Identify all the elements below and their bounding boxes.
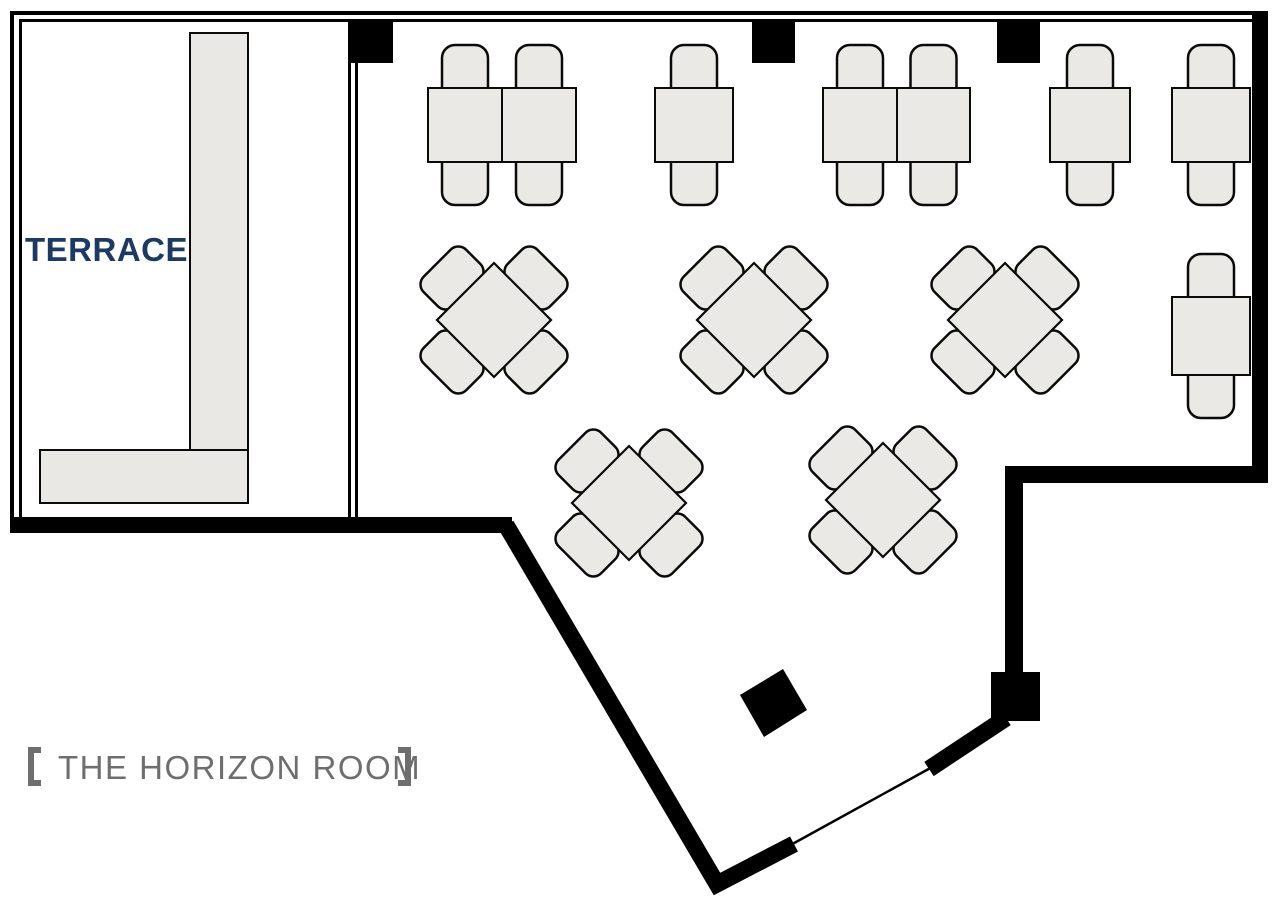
wall-top-inner: [19, 19, 1252, 22]
terrace-divider-a: [348, 22, 351, 517]
table: [823, 88, 897, 162]
terrace-divider-b: [355, 22, 358, 517]
wall-notch-vertical: [1005, 466, 1023, 673]
table: [1172, 88, 1250, 162]
pillar-diamond: [740, 669, 807, 737]
furniture-layer: [416, 45, 1250, 581]
terrace-counter-horizontal: [40, 450, 248, 503]
wall-terrace-bottom: [10, 517, 512, 533]
wall-door-jamb: [929, 718, 1006, 769]
floor-plan: TERRACE THE HORIZON ROOM: [0, 0, 1278, 902]
terrace-label: TERRACE: [25, 231, 188, 268]
table: [428, 88, 502, 162]
table: [655, 88, 733, 162]
wall-left-inner: [19, 19, 22, 517]
pillar-top-2: [752, 22, 795, 63]
wall-left-outer: [10, 11, 14, 533]
door-line: [787, 766, 934, 847]
wall-notch-horizontal: [1005, 466, 1268, 483]
terrace-counter-layer: [40, 33, 248, 503]
wall-top-outer: [10, 11, 1268, 15]
floor-plan-canvas: TERRACE THE HORIZON ROOM: [0, 0, 1278, 902]
room-label-bracket-left-icon: [31, 750, 41, 783]
table: [502, 88, 576, 162]
table: [1172, 297, 1250, 375]
table: [1050, 88, 1130, 162]
pillar-top-1: [348, 22, 393, 63]
terrace-counter-vertical: [190, 33, 248, 503]
wall-right: [1252, 11, 1268, 483]
pillar-top-3: [997, 22, 1040, 63]
room-label: THE HORIZON ROOM: [58, 749, 421, 786]
table: [897, 88, 970, 162]
pillar-door-corner: [991, 672, 1040, 721]
